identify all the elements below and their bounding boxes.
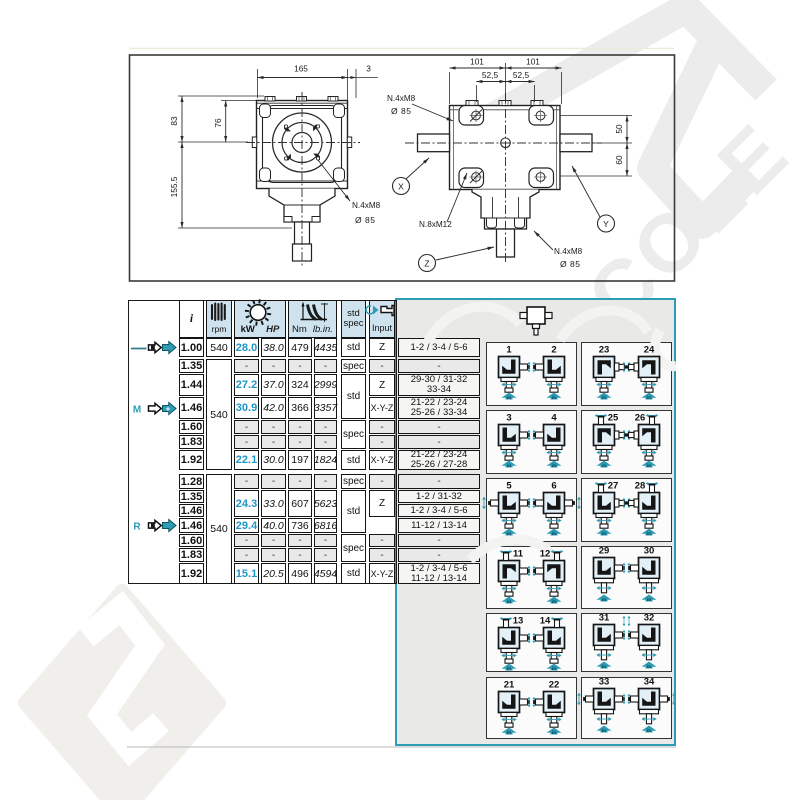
svg-text:21: 21: [504, 680, 515, 691]
svg-text:2: 2: [551, 345, 556, 356]
svg-text:Ø 85: Ø 85: [355, 215, 375, 225]
svg-text:34: 34: [644, 677, 655, 688]
svg-text:11: 11: [513, 549, 524, 560]
svg-text:4: 4: [551, 413, 557, 424]
svg-text:+: +: [166, 405, 171, 414]
svg-text:33: 33: [599, 677, 610, 688]
svg-text:52,5: 52,5: [513, 70, 530, 80]
svg-text:N.4xM8: N.4xM8: [387, 94, 416, 103]
svg-text:76: 76: [213, 118, 223, 128]
svg-text:3: 3: [506, 413, 511, 424]
svg-text:32: 32: [644, 613, 655, 624]
svg-text:23: 23: [599, 345, 610, 356]
svg-text:13: 13: [513, 616, 524, 627]
svg-text:6: 6: [551, 481, 556, 492]
svg-text:26: 26: [635, 413, 646, 424]
svg-text:Z: Z: [424, 259, 429, 269]
svg-text:Ø 85: Ø 85: [560, 259, 580, 269]
svg-text:M: M: [133, 405, 141, 416]
svg-text:29: 29: [599, 546, 610, 557]
svg-text:12: 12: [540, 549, 551, 560]
svg-text:27: 27: [608, 481, 619, 492]
svg-text:155.5: 155.5: [169, 176, 179, 197]
svg-text:28: 28: [635, 481, 646, 492]
svg-text:3: 3: [366, 64, 371, 74]
svg-text:83: 83: [169, 116, 179, 126]
svg-text:22: 22: [549, 680, 560, 691]
svg-text:5: 5: [506, 481, 512, 492]
svg-text:52,5: 52,5: [482, 70, 499, 80]
svg-text:25: 25: [608, 413, 619, 424]
svg-text:Y: Y: [603, 219, 609, 229]
svg-text:165: 165: [294, 64, 308, 74]
svg-text:X: X: [398, 182, 404, 192]
svg-text:60: 60: [614, 155, 624, 165]
svg-text:Ø 85: Ø 85: [391, 106, 411, 116]
svg-text:N.4xM8: N.4xM8: [554, 247, 583, 256]
svg-text:30: 30: [644, 546, 655, 557]
svg-text:14: 14: [540, 616, 551, 627]
svg-text:1: 1: [506, 345, 512, 356]
svg-text:24: 24: [644, 345, 655, 356]
svg-text:31: 31: [599, 613, 610, 624]
svg-text:R: R: [133, 522, 141, 533]
svg-text:101: 101: [470, 57, 484, 67]
svg-text:101: 101: [526, 57, 540, 67]
svg-text:50: 50: [614, 124, 624, 134]
svg-text:N.4xM8: N.4xM8: [352, 201, 381, 210]
